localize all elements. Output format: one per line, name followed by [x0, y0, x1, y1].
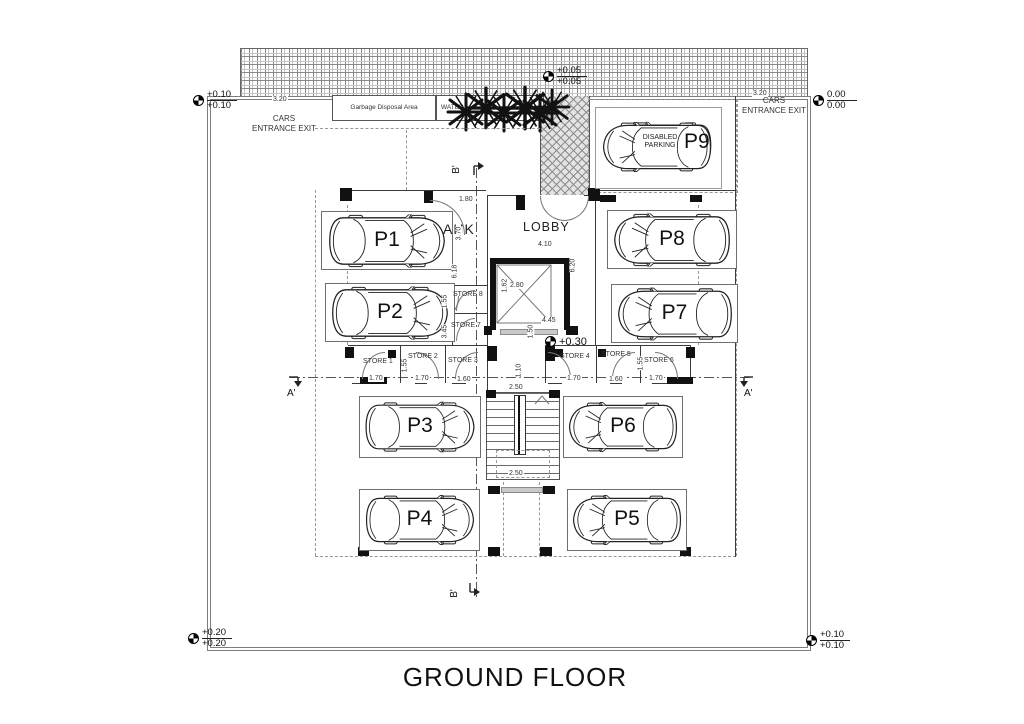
parking-label-p9: P9	[684, 130, 710, 154]
dim-label: 1.80	[458, 196, 474, 203]
level-symbol-icon	[545, 336, 556, 347]
section-arrow-icon	[466, 582, 488, 600]
dim-label: 1.70	[368, 375, 384, 382]
stair-exit-door	[501, 487, 543, 493]
dim-label: 1.70	[566, 375, 582, 382]
column	[487, 346, 497, 361]
parking-label-p4: P4	[360, 507, 479, 531]
dashed-line	[406, 130, 407, 190]
section-label-b-bottom: B'	[449, 589, 460, 598]
column	[566, 326, 578, 335]
dim-label: 6.20	[569, 259, 576, 273]
wall-line	[348, 345, 487, 346]
cars-entrance-right: CARS ENTRANCE EXIT	[742, 96, 806, 116]
section-arrow-icon	[288, 366, 306, 388]
section-arrow-icon	[470, 158, 492, 176]
dim-label: 1.60	[456, 376, 472, 383]
column	[540, 547, 552, 556]
dim-label: 1.70	[648, 375, 664, 382]
dim-label: 1.55	[441, 295, 448, 309]
level-value: +0.30	[559, 336, 587, 348]
store-label-5: STORE 5	[601, 351, 631, 358]
level-marker-center: +0.30	[545, 336, 587, 348]
level-symbol-icon	[188, 633, 199, 644]
dashed-line	[315, 556, 736, 557]
column	[388, 350, 396, 358]
dim-label: 1.10	[515, 364, 522, 378]
level-marker-top-left: +0.10+0.10	[193, 90, 237, 112]
parking-stall-p4: P4	[359, 489, 480, 551]
wall-line	[596, 345, 597, 383]
column	[543, 486, 555, 494]
level-value: +0.20	[202, 638, 226, 649]
cars-entrance-left: CARS ENTRANCE EXIT	[252, 114, 316, 134]
column	[486, 390, 496, 398]
parking-label-p2: P2	[326, 300, 454, 324]
wall-line	[452, 383, 466, 384]
dim-label: 2.50	[508, 384, 524, 391]
dim-label: 1.70	[414, 375, 430, 382]
dim-label: 1.55	[401, 359, 408, 373]
parking-stall-p8: P8	[607, 210, 737, 269]
floor-plan-sheet: Garbage Disposal Area WATER	[0, 0, 1024, 724]
elevator-x-icon	[496, 264, 552, 324]
column	[686, 347, 695, 358]
dim-label: 3.20	[752, 90, 768, 97]
dim-label: 1.55	[637, 357, 644, 371]
column	[600, 195, 616, 202]
wall-line	[340, 190, 486, 191]
wall-line	[415, 383, 427, 384]
dim-label: 6.18	[451, 265, 458, 279]
parking-stall-p1: P1	[321, 211, 453, 270]
wall-line	[548, 383, 562, 384]
parking-label-p6: P6	[564, 414, 682, 438]
column	[549, 390, 560, 398]
column	[340, 188, 352, 201]
dashed-line	[539, 482, 540, 556]
wall-line	[487, 195, 517, 196]
section-arrow-icon	[736, 366, 754, 388]
level-value: 0.00	[827, 100, 846, 111]
section-label-a-left: A'	[287, 388, 296, 399]
parking-label-p5: P5	[568, 507, 686, 531]
dim-label: 2.80	[509, 282, 525, 289]
wall-line	[452, 285, 487, 286]
wall-line	[595, 195, 596, 345]
dim-label: 3.70	[455, 227, 462, 241]
level-value: +0.10	[207, 100, 231, 111]
parking-stall-p6: P6	[563, 396, 683, 458]
elevator-shaft	[490, 258, 570, 330]
dashed-line	[503, 482, 504, 556]
level-symbol-icon	[806, 635, 817, 646]
store-label-6: STORE 6	[644, 357, 674, 364]
wall-line	[652, 383, 668, 384]
stair-handrail	[514, 395, 526, 455]
parking-stall-p9: DISABLED PARKING P9	[595, 107, 722, 189]
store-label-3: STORE 3	[448, 357, 478, 364]
dim-label: 1.50	[527, 325, 534, 339]
level-marker-top-center: +0.05+0.05	[543, 66, 587, 88]
store-label-2: STORE 2	[408, 353, 438, 360]
parking-label-p8: P8	[608, 227, 736, 251]
drawing-title: GROUND FLOOR	[397, 662, 633, 693]
level-symbol-icon	[193, 95, 204, 106]
parking-label-p1: P1	[322, 228, 452, 252]
dim-label: 4.10	[537, 241, 553, 248]
dim-label: 1.62	[501, 279, 508, 293]
level-symbol-icon	[543, 71, 554, 82]
column	[690, 195, 702, 202]
level-value: +0.10	[820, 640, 844, 651]
parking-stall-p3: P3	[359, 396, 481, 458]
column	[516, 195, 525, 210]
wall-line	[487, 195, 488, 392]
wall-line	[610, 383, 622, 384]
dim-label: 3.45	[441, 325, 448, 339]
store-label-4: STORE 4	[560, 353, 590, 360]
column	[488, 486, 500, 494]
level-marker-bottom-left: +0.20+0.20	[188, 628, 232, 650]
column	[484, 326, 492, 335]
parking-label-p7: P7	[612, 301, 737, 325]
parking-stall-p5: P5	[567, 489, 687, 551]
section-label-a-right: A'	[744, 388, 753, 399]
level-marker-top-right: 0.000.00	[813, 90, 857, 112]
room-label-lobby: LOBBY	[523, 220, 570, 234]
dim-label: 3.20	[272, 96, 288, 103]
parking-stall-p2: P2	[325, 283, 455, 342]
garbage-label: Garbage Disposal Area	[350, 104, 417, 111]
column	[588, 188, 600, 201]
store-label-8: STORE 8	[453, 291, 483, 298]
column	[488, 547, 500, 556]
column	[345, 347, 354, 358]
disabled-parking-note: DISABLED PARKING	[636, 134, 684, 151]
garbage-disposal-area: Garbage Disposal Area	[332, 95, 436, 121]
wall-line	[588, 190, 735, 191]
dashed-line	[315, 128, 540, 129]
level-value: +0.05	[557, 76, 581, 87]
wall-line	[445, 345, 446, 383]
level-marker-bottom-right: +0.10+0.10	[806, 630, 850, 652]
dim-label: 4.45	[541, 317, 557, 324]
parking-stall-p7: P7	[611, 284, 738, 343]
wall-line	[452, 313, 487, 314]
parking-label-p3: P3	[360, 414, 480, 438]
plant-icon	[533, 88, 571, 126]
dim-label: 1.60	[608, 376, 624, 383]
store-label-1: STORE 1	[363, 358, 393, 365]
store-label-7: STORE 7	[451, 322, 481, 329]
level-symbol-icon	[813, 95, 824, 106]
dim-label: 2.50	[508, 470, 524, 477]
section-label-b-top: B'	[451, 165, 462, 174]
dashed-line	[315, 190, 316, 556]
